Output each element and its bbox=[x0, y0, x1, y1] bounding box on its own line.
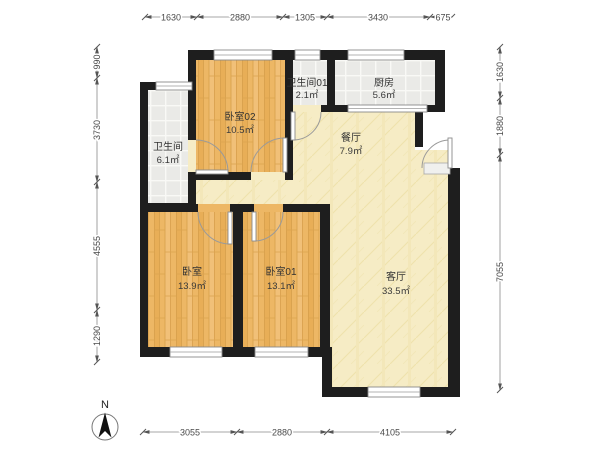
label-living-area: 33.5㎡ bbox=[382, 286, 410, 297]
window-kitchen bbox=[348, 50, 404, 60]
dim-top-4: 3430 bbox=[368, 13, 388, 23]
label-living-name: 客厅 bbox=[386, 270, 406, 283]
wall-left bbox=[140, 82, 148, 357]
opening-bedroom-02 bbox=[251, 172, 285, 180]
wall-bathroom-bottom bbox=[140, 203, 196, 212]
dim-left-4: 1290 bbox=[92, 326, 102, 346]
label-bedroom-02-name: 卧室02 bbox=[224, 110, 256, 123]
label-bathroom-area: 6.1㎡ bbox=[157, 155, 180, 166]
label-kitchen-area: 5.6㎡ bbox=[373, 90, 396, 101]
compass: N bbox=[92, 399, 118, 440]
dim-top: 1630 2880 1305 3430 675 bbox=[142, 13, 455, 23]
dim-bottom-2: 2880 bbox=[272, 428, 292, 438]
dim-bottom-1: 3055 bbox=[180, 428, 200, 438]
wall-kitchen-bathroom01-divider bbox=[327, 60, 335, 112]
window-bathroom bbox=[156, 82, 192, 90]
window-bathroom-01 bbox=[295, 50, 320, 60]
dim-left: 990 3730 4555 1290 bbox=[92, 44, 102, 365]
dim-top-1: 1630 bbox=[161, 13, 181, 23]
label-bedroom-01-area: 13.1㎡ bbox=[267, 281, 295, 292]
opening-bedroom-01 bbox=[254, 204, 283, 212]
label-bedroom-name: 卧室 bbox=[182, 265, 202, 278]
window-bedroom bbox=[170, 347, 222, 357]
label-dining-area: 7.9㎡ bbox=[340, 146, 363, 157]
window-living bbox=[368, 387, 420, 397]
kitchen-sliding-opening bbox=[348, 105, 427, 112]
label-bedroom-01-name: 卧室01 bbox=[265, 265, 297, 278]
entry-door-sill bbox=[424, 163, 450, 174]
room-bedroom-floor bbox=[148, 212, 233, 347]
label-kitchen-name: 厨房 bbox=[374, 76, 394, 89]
label-bedroom-02-area: 10.5㎡ bbox=[226, 125, 254, 136]
dim-right-2: 1880 bbox=[495, 116, 505, 136]
dim-right: 1630 1880 7055 bbox=[495, 44, 505, 393]
dim-top-5: 675 bbox=[435, 13, 450, 23]
dim-right-3: 7055 bbox=[495, 262, 505, 282]
window-bedroom-01 bbox=[255, 347, 308, 357]
dim-left-3: 4555 bbox=[92, 236, 102, 256]
wall-bedroom-01-right bbox=[320, 204, 330, 357]
wall-living-right bbox=[448, 168, 460, 397]
floor-plan-svg: 卧室02 10.5㎡ 卫生间01 2.1㎡ 厨房 5.6㎡ 餐厅 7.9㎡ 卫生… bbox=[0, 0, 600, 450]
opening-bedroom bbox=[198, 204, 230, 212]
dim-left-2: 3730 bbox=[92, 120, 102, 140]
label-bathroom-name: 卫生间 bbox=[153, 140, 183, 153]
opening-bathroom bbox=[188, 140, 196, 172]
window-bedroom-02 bbox=[214, 50, 272, 60]
label-bathroom-01-area: 2.1㎡ bbox=[296, 90, 319, 101]
dim-top-2: 2880 bbox=[230, 13, 250, 23]
wall-kitchen-right bbox=[435, 50, 445, 112]
dim-left-1: 990 bbox=[92, 54, 102, 69]
dim-bottom: 3055 2880 4105 bbox=[140, 428, 456, 438]
label-dining-name: 餐厅 bbox=[341, 131, 361, 144]
compass-north-label: N bbox=[101, 399, 109, 411]
label-bathroom-01-name: 卫生间01 bbox=[286, 76, 328, 89]
dim-right-1: 1630 bbox=[495, 62, 505, 82]
wall-between-bedrooms bbox=[233, 212, 243, 347]
label-bedroom-area: 13.9㎡ bbox=[178, 281, 206, 292]
floor-plan-canvas: 卧室02 10.5㎡ 卫生间01 2.1㎡ 厨房 5.6㎡ 餐厅 7.9㎡ 卫生… bbox=[0, 0, 600, 450]
opening-bathroom-01 bbox=[293, 105, 321, 112]
dim-bottom-3: 4105 bbox=[380, 428, 400, 438]
dim-top-3: 1305 bbox=[295, 13, 315, 23]
